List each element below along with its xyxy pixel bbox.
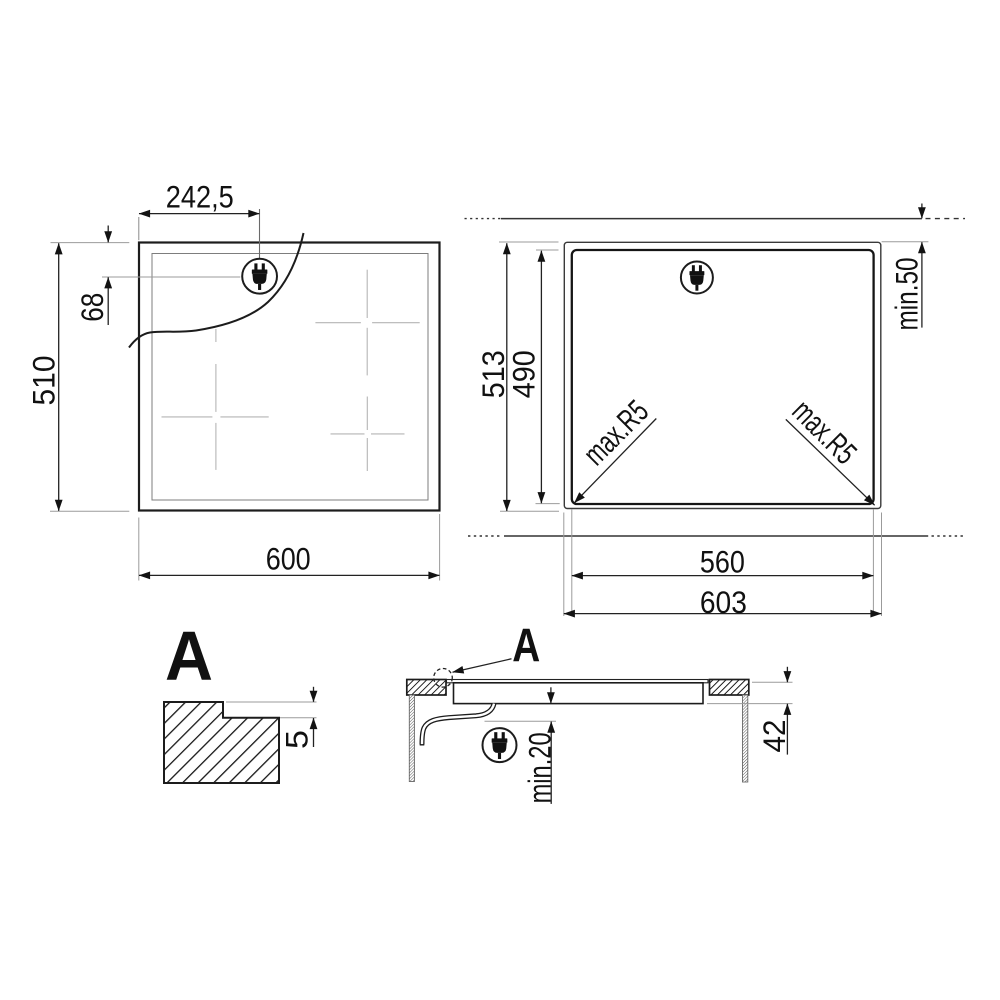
svg-text:68: 68 [74, 293, 110, 322]
svg-text:600: 600 [266, 541, 311, 577]
svg-text:510: 510 [25, 356, 61, 406]
svg-text:603: 603 [700, 584, 747, 620]
svg-text:560: 560 [700, 544, 745, 580]
svg-text:min.20: min.20 [522, 732, 558, 803]
svg-text:490: 490 [506, 350, 542, 398]
svg-text:A: A [165, 617, 213, 695]
svg-text:242,5: 242,5 [166, 178, 234, 214]
svg-text:A: A [512, 618, 540, 671]
svg-text:min.50: min.50 [889, 258, 925, 331]
svg-text:5: 5 [278, 730, 314, 749]
svg-text:42: 42 [756, 720, 792, 753]
